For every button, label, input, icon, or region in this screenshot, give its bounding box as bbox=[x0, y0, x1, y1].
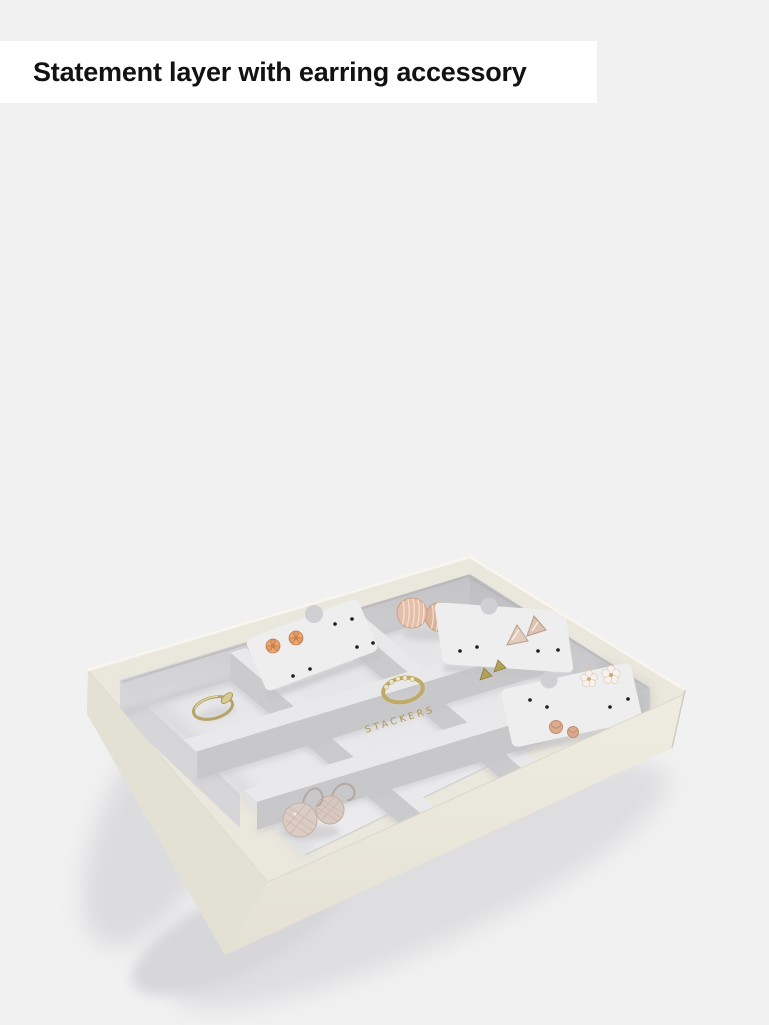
card-notch bbox=[541, 672, 558, 689]
caption-box: Statement layer with earring accessory bbox=[0, 41, 597, 103]
card-notch bbox=[481, 598, 498, 615]
card-notch bbox=[305, 605, 323, 623]
jewelry-tray-illustration: STACKERS bbox=[0, 0, 769, 1025]
page: { "page": { "background_color": "#f1f1f2… bbox=[0, 0, 769, 1025]
product-image: STACKERS bbox=[0, 0, 769, 1025]
caption-text: Statement layer with earring accessory bbox=[33, 57, 527, 88]
